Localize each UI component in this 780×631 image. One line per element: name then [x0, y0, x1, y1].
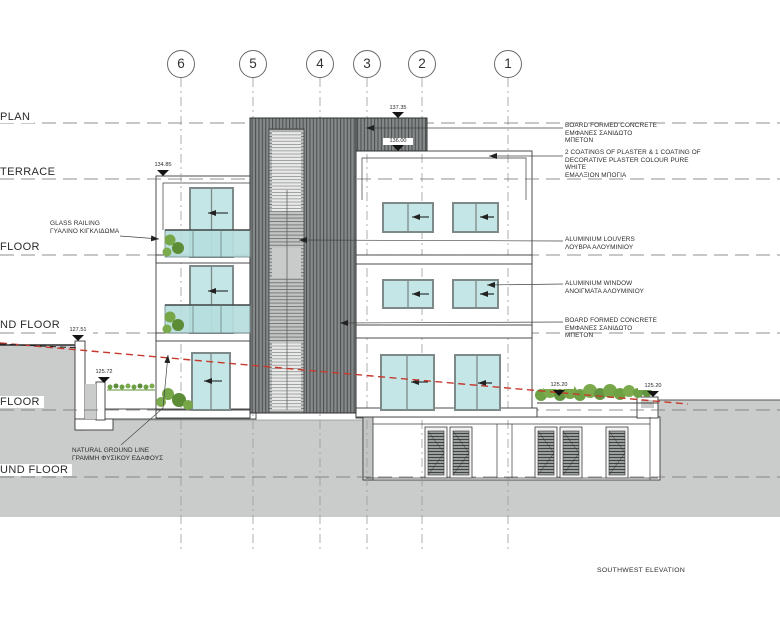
elevation-value-125-20-a: 125.20 [544, 382, 574, 389]
annotation-line: ΑΝΟΙΓΜΑΤΑ ΑΛΟΥΜΙΝΙΟΥ [565, 288, 644, 296]
annotation-line: BOARD FORMED CONCRETE [565, 317, 657, 325]
annotation-line: DECORATIVE PLASTER COLOUR PURE [565, 157, 701, 165]
level-label-plan: PLAN [0, 111, 34, 123]
annotation-line: 2 COATINGS OF PLASTER & 1 COATING OF [565, 149, 701, 157]
stair-landing [272, 248, 301, 278]
annotation-line: WHITE [565, 164, 701, 172]
elevation-linework [0, 0, 780, 631]
stair-flight-upper [272, 131, 301, 211]
stair-flight-lower [272, 343, 301, 411]
level-label-und-floor: UND FLOOR [0, 464, 72, 476]
planter-grass [107, 384, 155, 391]
grid-bubbles [168, 51, 522, 78]
grid-bubble-4: 4 [306, 57, 334, 71]
annotation-line: ΕΜΦΑΝΕΣ ΣΑΝΙΔΩΤΟ [565, 325, 657, 333]
grid-bubble-1: 1 [494, 57, 522, 71]
basement-left-wall [363, 417, 373, 480]
elevation-value-127-51: 127.51 [63, 327, 93, 334]
elevation-value-125-72: 125.72 [89, 369, 119, 376]
grid-bubble-3: 3 [353, 57, 381, 71]
annotation-line: ΓΡΑΜΜΗ ΦΥΣΙΚΟΥ ΕΔΑΦΟΥΣ [72, 455, 163, 463]
drawing-title: SOUTHWEST ELEVATION [597, 567, 685, 574]
left-retaining-wall [75, 341, 85, 430]
left-wing-doors [190, 188, 233, 410]
annotation-aluminium-window: ALUMINIUM WINDOW ΑΝΟΙΓΜΑΤΑ ΑΛΟΥΜΙΝΙΟΥ [565, 280, 644, 295]
right-planter-fill [641, 400, 654, 408]
annotation-glass-railing: GLASS RAILING ΓΥΑΛΙΝΟ ΚΙΓΚΛΙΔΩΜΑ [50, 220, 119, 235]
grid-bubble-2: 2 [408, 57, 436, 71]
annotation-board-formed-concrete-top: BOARD FORMED CONCRETE ΕΜΦΑΝΕΣ ΣΑΝΙΔΩΤΟ Μ… [565, 122, 657, 145]
left-planter-wall [96, 382, 105, 420]
annotation-line: ΓΥΑΛΙΝΟ ΚΙΓΚΛΙΔΩΜΑ [50, 228, 119, 236]
annotation-line: ΕΜΦΑΝΕΣ ΣΑΝΙΔΩΤΟ [565, 130, 657, 138]
annotation-line: BOARD FORMED CONCRETE [565, 122, 657, 130]
annotation-line: GLASS RAILING [50, 220, 119, 228]
annotation-natural-ground-line: NATURAL GROUND LINE ΓΡΑΜΜΗ ΦΥΣΙΚΟΥ ΕΔΑΦΟ… [72, 447, 163, 462]
annotation-line: ΜΠΕΤΟΝ [565, 137, 657, 145]
elevation-drawing-canvas: 6 5 4 3 2 1 PLAN TERRACE FLOOR ND FLOOR … [0, 0, 780, 631]
level-label-terrace: TERRACE [0, 166, 59, 178]
annotation-line: ΜΠΕΤΟΝ [565, 332, 657, 340]
level-label-nd-floor: ND FLOOR [0, 319, 64, 331]
elevation-value-134-85: 134.85 [148, 162, 178, 169]
annotation-line: ΛΟΥΒΡΑ ΑΛΟΥΜΙΝΙΟΥ [565, 244, 635, 252]
left-planter-fill [85, 384, 96, 419]
elevation-value-136-00: 136.00 [383, 138, 413, 145]
left-planter-base [75, 419, 113, 430]
elevation-value-125-20-b: 125.20 [638, 383, 668, 390]
level-label-floor-1: FLOOR [0, 396, 44, 408]
annotation-line: NATURAL GROUND LINE [72, 447, 163, 455]
annotation-line: ALUMINIUM WINDOW [565, 280, 644, 288]
grid-bubble-5: 5 [239, 57, 267, 71]
grid-bubble-6: 6 [167, 57, 195, 71]
level-label-floor-2: FLOOR [0, 241, 44, 253]
annotation-board-formed-concrete-bottom: BOARD FORMED CONCRETE ΕΜΦΑΝΕΣ ΣΑΝΙΔΩΤΟ Μ… [565, 317, 657, 340]
elevation-value-137-35: 137.35 [383, 105, 413, 112]
annotation-line: ALUMINIUM LOUVERS [565, 236, 635, 244]
annotation-line: ΕΜΑΛΞΙΟΝ ΜΠΟΓΙΑ [565, 172, 701, 180]
annotation-aluminium-louvers: ALUMINIUM LOUVERS ΛΟΥΒΡΑ ΑΛΟΥΜΙΝΙΟΥ [565, 236, 635, 251]
annotation-plaster-coatings: 2 COATINGS OF PLASTER & 1 COATING OF DEC… [565, 149, 701, 179]
